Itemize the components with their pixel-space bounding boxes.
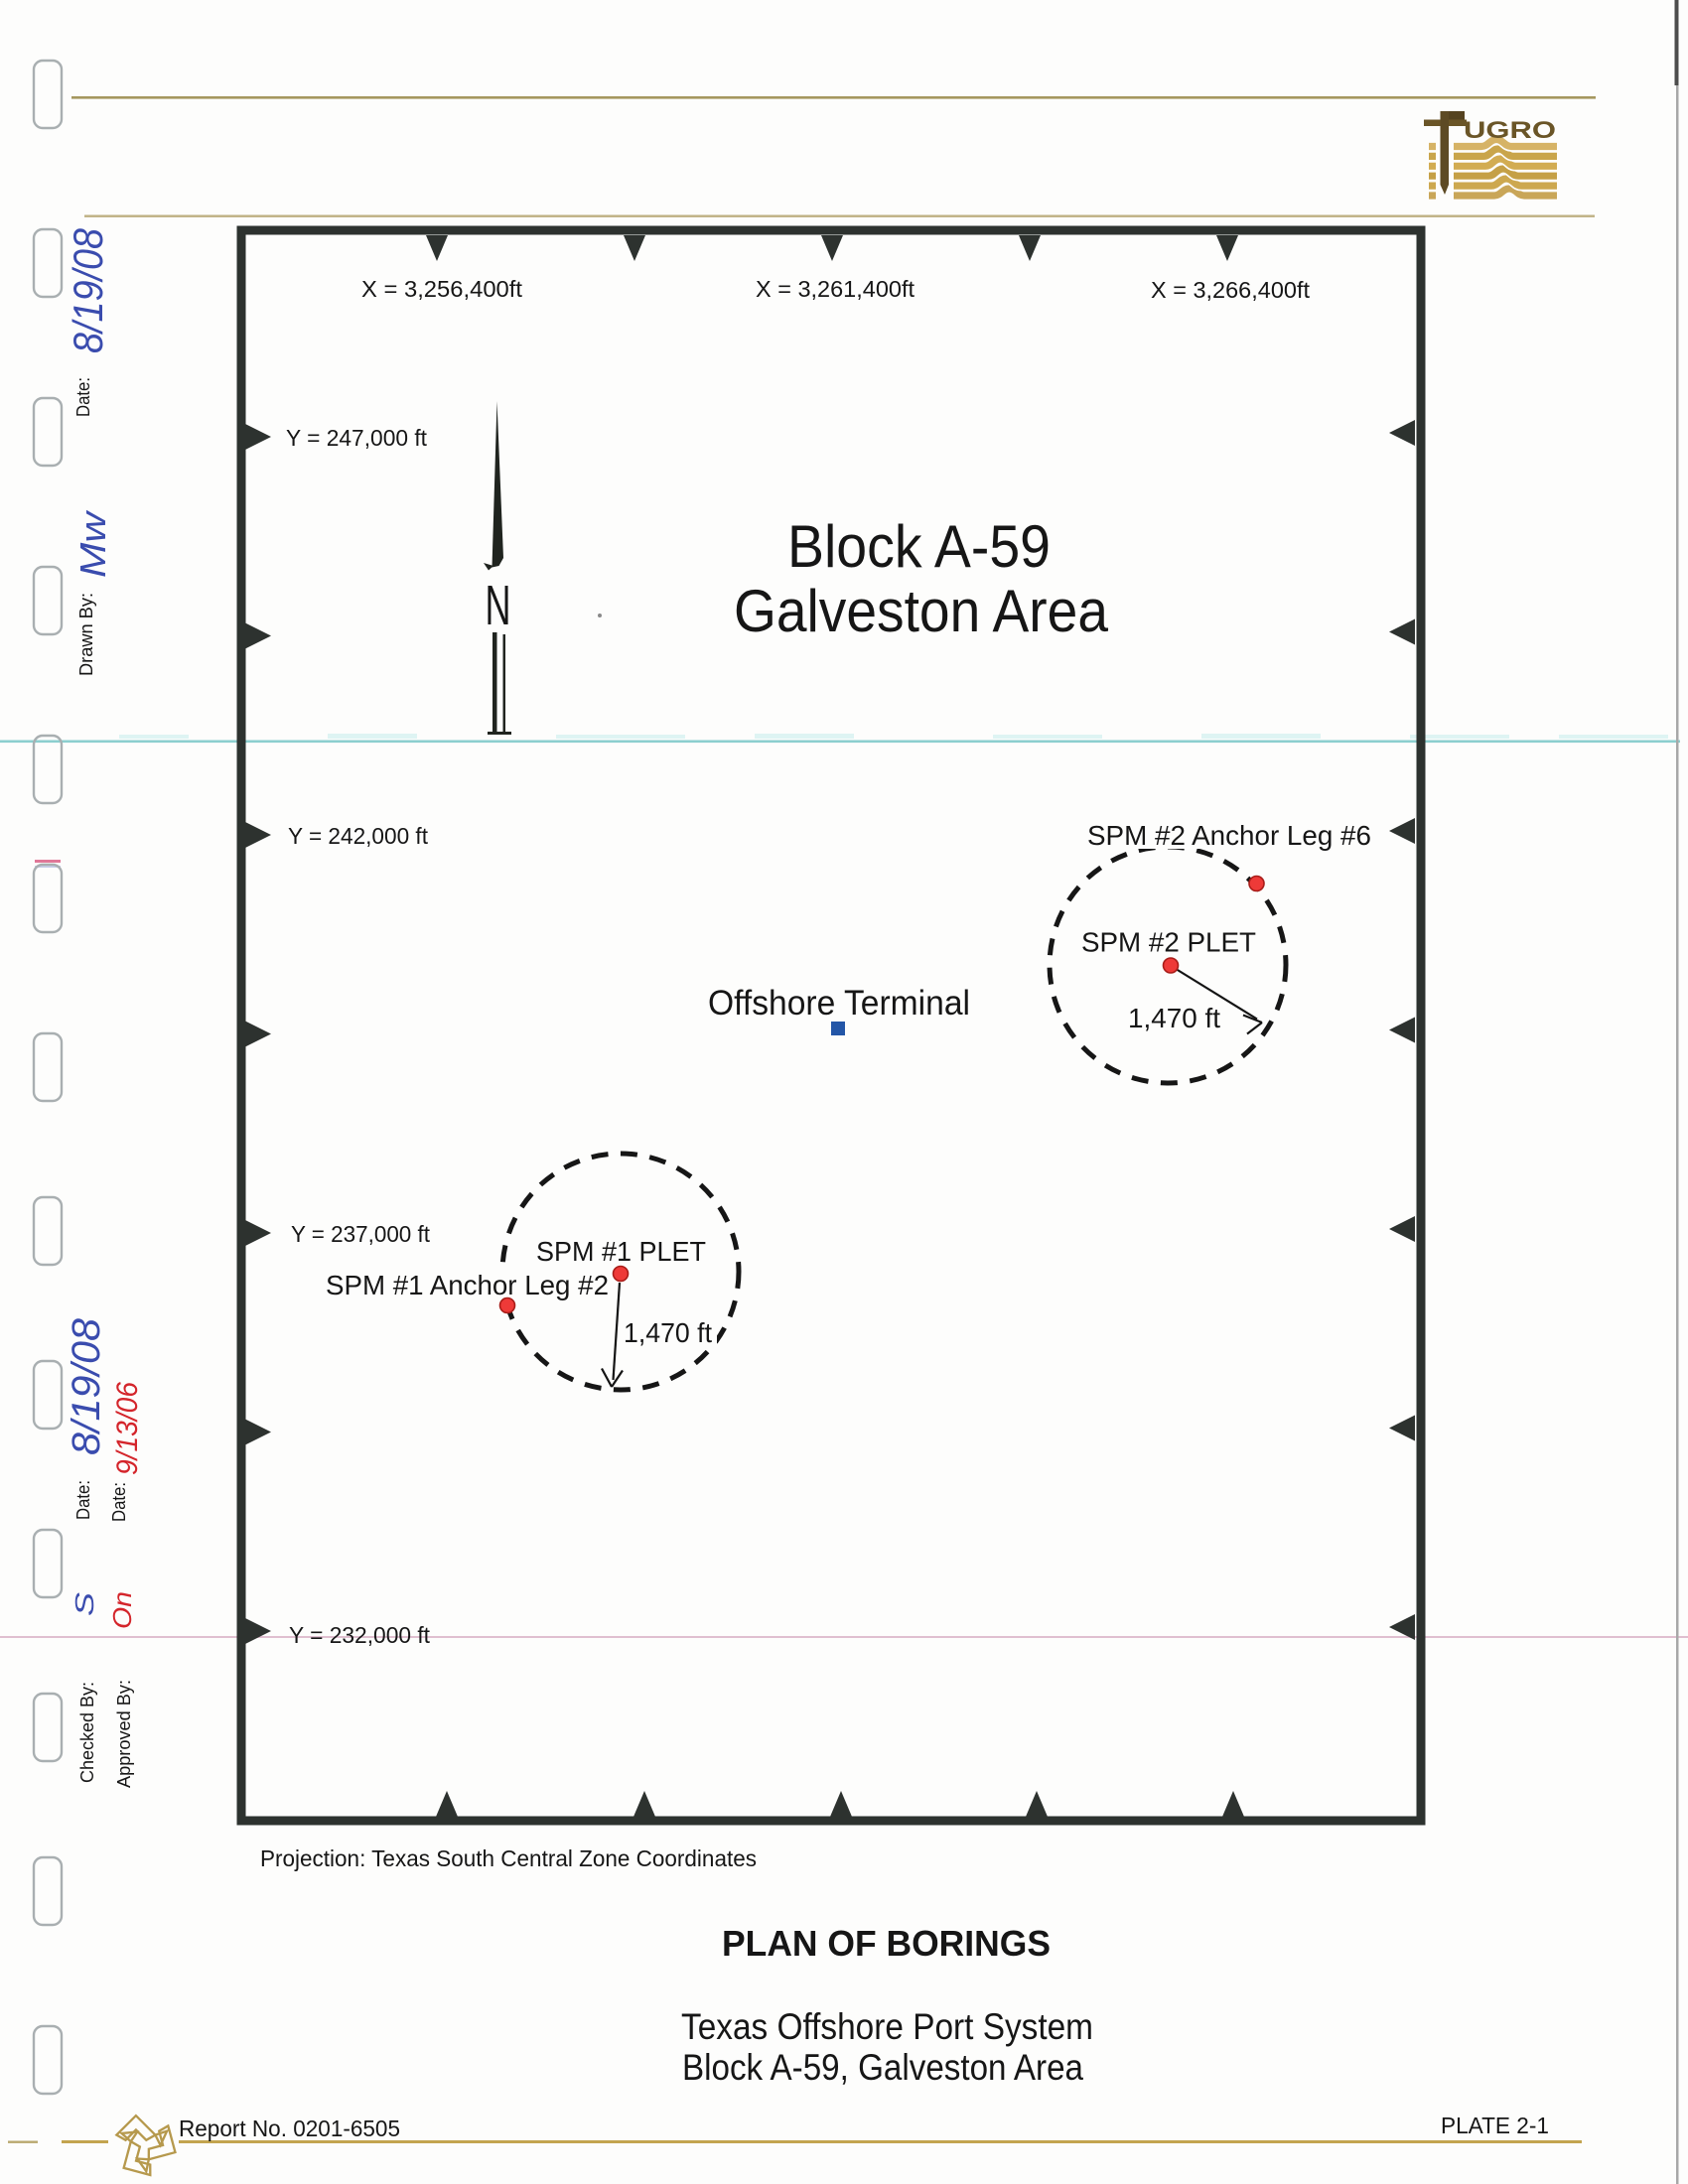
- svg-text:Y = 247,000 ft: Y = 247,000 ft: [286, 425, 427, 451]
- svg-text:On: On: [107, 1591, 137, 1629]
- svg-text:Block A-59, Galveston Area: Block A-59, Galveston Area: [682, 2047, 1083, 2088]
- svg-text:Block A-59: Block A-59: [787, 513, 1051, 580]
- svg-text:Approved By:: Approved By:: [113, 1680, 134, 1788]
- svg-text:Projection: Texas South Centr: Projection: Texas South Central Zone Coo…: [260, 1845, 757, 1871]
- svg-text:Y = 242,000 ft: Y = 242,000 ft: [288, 823, 428, 849]
- svg-text:Galveston Area: Galveston Area: [734, 578, 1109, 644]
- svg-text:Y = 232,000 ft: Y = 232,000 ft: [289, 1622, 430, 1648]
- svg-text:UGRO: UGRO: [1464, 117, 1556, 144]
- svg-text:Y = 237,000 ft: Y = 237,000 ft: [291, 1221, 430, 1247]
- svg-text:SPM #1 PLET: SPM #1 PLET: [536, 1236, 706, 1267]
- svg-text:8/19/08: 8/19/08: [65, 227, 111, 353]
- svg-text:1,470 ft: 1,470 ft: [1128, 1003, 1220, 1033]
- svg-text:1,470 ft: 1,470 ft: [624, 1317, 712, 1348]
- svg-text:Mw: Mw: [72, 510, 113, 578]
- svg-text:Date:: Date:: [72, 377, 93, 417]
- svg-text:PLATE 2-1: PLATE 2-1: [1441, 2113, 1549, 2138]
- svg-text:8/19/08: 8/19/08: [65, 1317, 108, 1455]
- svg-text:S: S: [70, 1591, 99, 1616]
- svg-text:SPM #2 Anchor Leg #6: SPM #2 Anchor Leg #6: [1087, 820, 1371, 851]
- svg-text:X = 3,261,400ft: X = 3,261,400ft: [756, 276, 914, 302]
- svg-text:X = 3,266,400ft: X = 3,266,400ft: [1151, 277, 1310, 303]
- svg-text:Drawn By:: Drawn By:: [75, 593, 96, 676]
- svg-text:SPM #1 Anchor Leg #2: SPM #1 Anchor Leg #2: [326, 1270, 609, 1300]
- svg-text:Date:: Date:: [108, 1482, 129, 1522]
- svg-text:Offshore Terminal: Offshore Terminal: [708, 984, 970, 1023]
- svg-text:9/13/06: 9/13/06: [111, 1382, 144, 1475]
- svg-text:X = 3,256,400ft: X = 3,256,400ft: [361, 276, 522, 302]
- svg-text:Date:: Date:: [72, 1480, 93, 1520]
- svg-text:Checked By:: Checked By:: [76, 1682, 97, 1783]
- svg-text:PLAN OF BORINGS: PLAN OF BORINGS: [722, 1923, 1051, 1964]
- svg-text:SPM #2 PLET: SPM #2 PLET: [1081, 927, 1256, 958]
- svg-text:Texas Offshore Port System: Texas Offshore Port System: [681, 2006, 1093, 2047]
- svg-text:N: N: [486, 574, 511, 637]
- svg-text:Report No. 0201-6505: Report No. 0201-6505: [179, 2116, 400, 2141]
